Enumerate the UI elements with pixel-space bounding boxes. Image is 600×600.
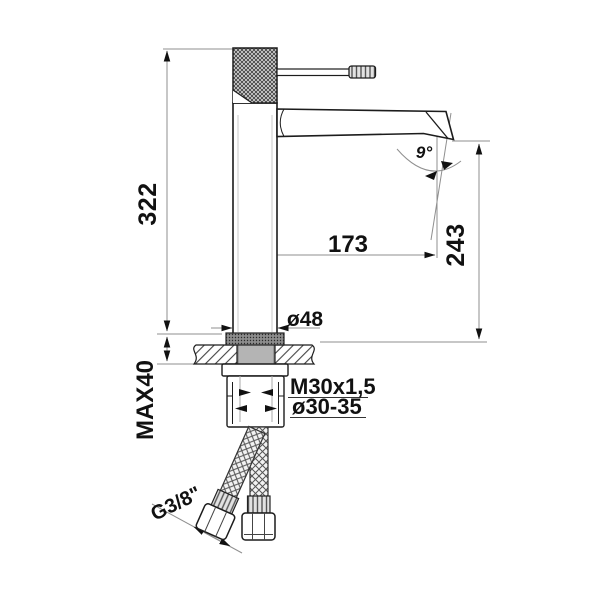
counter-slab-left bbox=[194, 345, 237, 364]
mounting-nut bbox=[227, 376, 284, 427]
dim-spout-outlet-height-label: 243 bbox=[442, 223, 470, 266]
technical-drawing-canvas: 322 MAX40 243 173 ø48 M30x1,5 ø30-35 9° … bbox=[0, 0, 600, 600]
angle-arrow-left bbox=[425, 171, 437, 180]
hose-connector-right bbox=[242, 513, 275, 540]
dim-mounting-hole-label: ø30-35 bbox=[292, 394, 362, 419]
lever-handle-grip bbox=[349, 66, 376, 78]
dim-hose-connection-label: G3/8" bbox=[147, 483, 204, 526]
dim-body-diameter-label: ø48 bbox=[287, 308, 324, 331]
base-flange bbox=[226, 333, 284, 345]
lever-handle-bar bbox=[277, 69, 350, 76]
faucet-dimension-drawing: 322 MAX40 243 173 ø48 M30x1,5 ø30-35 9° … bbox=[0, 0, 600, 600]
mounting-washer bbox=[222, 364, 288, 376]
hose-collar-right bbox=[248, 496, 271, 513]
dim-max-deck-thickness-label: MAX40 bbox=[132, 360, 159, 440]
faucet-body-column bbox=[233, 103, 277, 334]
dim-outlet-angle-label: 9° bbox=[416, 143, 432, 162]
counter-slab-right bbox=[275, 345, 314, 364]
dim-spout-reach-label: 173 bbox=[328, 231, 368, 258]
dim-total-height-label: 322 bbox=[134, 182, 162, 225]
